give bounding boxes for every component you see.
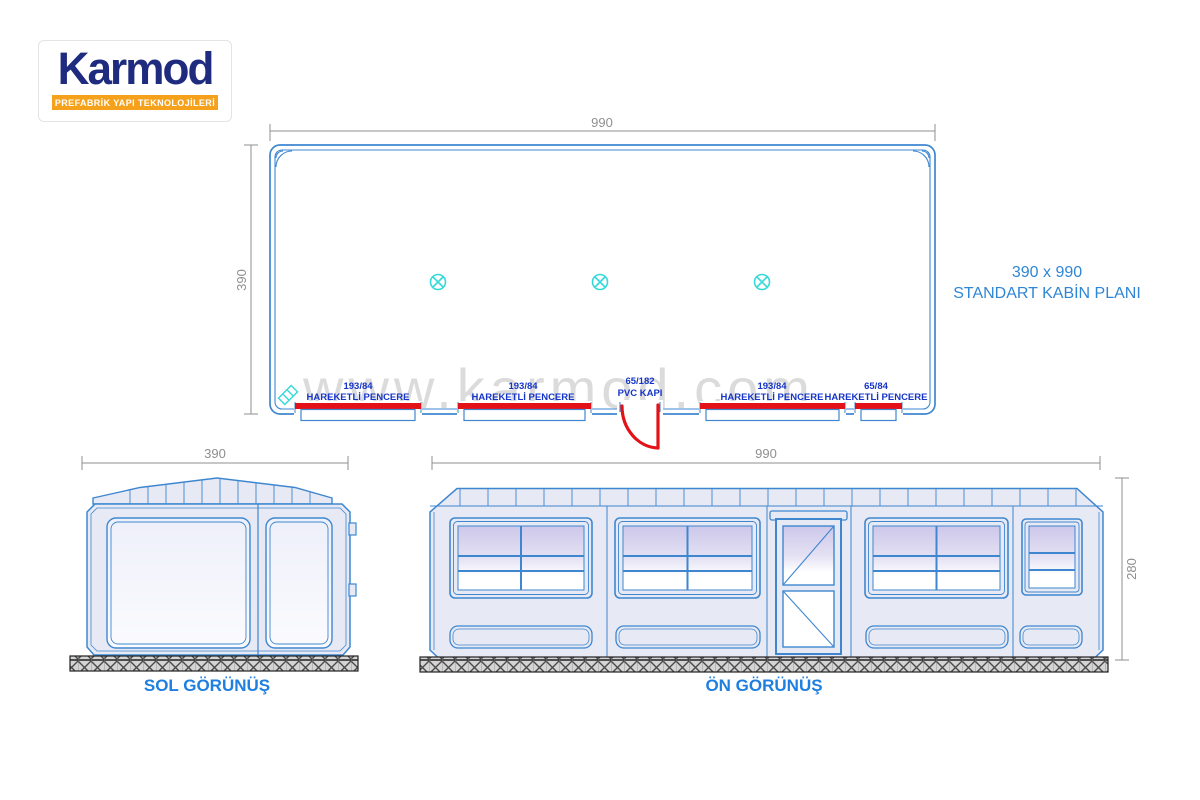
plan-width-value: 990	[591, 115, 613, 130]
ground-hatch	[70, 656, 358, 671]
karmod-logo-tagline: PREFABRİK YAPI TEKNOLOJİLERİ	[52, 95, 218, 110]
front-view-height-value: 280	[1124, 558, 1139, 580]
window-marker	[295, 403, 902, 409]
svg-text:65/182: 65/182	[625, 376, 654, 387]
plan-title-name: STANDART KABİN PLANI	[953, 283, 1141, 302]
ceiling-light-icon	[593, 275, 608, 290]
front-view-label: ÖN GÖRÜNÜŞ	[705, 676, 822, 695]
ceiling-lights	[431, 275, 770, 290]
svg-text:193/84: 193/84	[757, 381, 787, 392]
plan-height-dimension: 390	[234, 145, 258, 414]
front-view-small-window	[1022, 519, 1082, 595]
corner-detail-icon	[276, 151, 929, 167]
left-view-width-value: 390	[204, 446, 226, 461]
left-view-label: SOL GÖRÜNÜŞ	[144, 676, 270, 695]
drawing-sheet: www.karmod.com Karmod PREFABRİK YAPI TEK…	[0, 0, 1200, 800]
left-elevation: 390 SOL	[70, 446, 358, 695]
svg-text:PVC KAPI: PVC KAPI	[618, 388, 663, 399]
front-elevation: 990 280	[420, 446, 1139, 695]
floor-plan: 990 390	[234, 115, 1141, 448]
plan-title: 390 x 990 STANDART KABİN PLANI	[953, 264, 1141, 302]
left-view-width-dimension: 390	[82, 446, 348, 470]
plan-title-size: 390 x 990	[1012, 264, 1082, 281]
opening-label: 65/84 HAREKETLİ PENCERE	[825, 381, 928, 403]
opening-label: 193/84 HAREKETLİ PENCERE	[721, 381, 824, 403]
opening-label: 193/84 HAREKETLİ PENCERE	[307, 381, 410, 403]
opening-label: 65/182 PVC KAPI	[618, 376, 663, 399]
left-view-roof	[93, 478, 332, 504]
karmod-logo-wordmark: Karmod	[41, 44, 229, 94]
plan-opening-labels: 193/84 HAREKETLİ PENCERE 193/84 HAREKETL…	[307, 376, 928, 403]
svg-text:HAREKETLİ PENCERE: HAREKETLİ PENCERE	[307, 392, 410, 403]
front-view-window	[615, 518, 760, 598]
ceiling-light-icon	[755, 275, 770, 290]
karmod-logo: Karmod PREFABRİK YAPI TEKNOLOJİLERİ	[38, 40, 232, 122]
svg-text:HAREKETLİ PENCERE: HAREKETLİ PENCERE	[472, 392, 575, 403]
front-view-width-value: 990	[755, 446, 777, 461]
front-view-window	[450, 518, 592, 598]
front-view-window	[865, 518, 1008, 598]
svg-text:HAREKETLİ PENCERE: HAREKETLİ PENCERE	[721, 392, 824, 403]
svg-text:HAREKETLİ PENCERE: HAREKETLİ PENCERE	[825, 392, 928, 403]
front-view-height-dimension: 280	[1115, 478, 1139, 660]
ceiling-light-icon	[431, 275, 446, 290]
svg-text:193/84: 193/84	[343, 381, 373, 392]
opening-label: 193/84 HAREKETLİ PENCERE	[472, 381, 575, 403]
plan-door	[617, 400, 663, 448]
plan-height-value: 390	[234, 269, 249, 291]
front-view-door	[770, 511, 847, 654]
plan-width-dimension: 990	[270, 115, 935, 141]
front-view-width-dimension: 990	[432, 446, 1100, 470]
svg-text:65/84: 65/84	[864, 381, 888, 392]
left-view-panels	[107, 518, 332, 648]
svg-text:193/84: 193/84	[508, 381, 538, 392]
plan-window-openings	[294, 401, 903, 421]
ground-hatch	[420, 657, 1108, 672]
